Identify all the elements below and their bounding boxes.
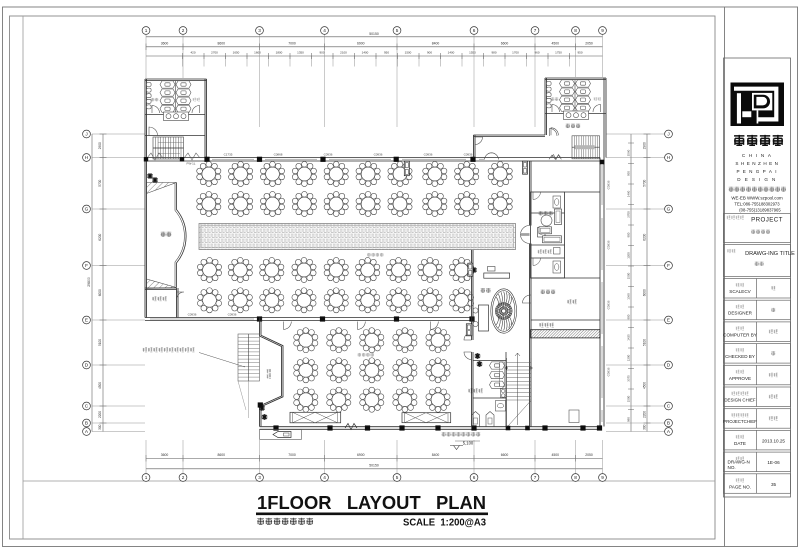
svg-text:2100: 2100 [340, 51, 347, 55]
svg-text:C0936: C0936 [228, 313, 237, 317]
svg-text:C0936: C0936 [324, 153, 333, 157]
svg-text:TEL:086-755188302973: TEL:086-755188302973 [734, 202, 780, 207]
svg-text:1460: 1460 [627, 190, 631, 197]
svg-text:1500: 1500 [405, 51, 412, 55]
svg-text:2050: 2050 [585, 42, 593, 46]
svg-text:FW-1L: FW-1L [187, 162, 196, 166]
svg-text:SCALE 1:200@A3: SCALE 1:200@A3 [403, 518, 486, 529]
svg-text:3600: 3600 [161, 42, 169, 46]
svg-text:G: G [85, 207, 89, 212]
svg-text:7000: 7000 [288, 42, 296, 46]
svg-text:PAGE NO.: PAGE NO. [729, 484, 751, 489]
svg-text:J: J [85, 132, 87, 137]
svg-text:6600: 6600 [501, 42, 509, 46]
svg-text:E: E [667, 318, 670, 323]
svg-text:6600: 6600 [501, 453, 509, 457]
svg-text:7000: 7000 [288, 453, 296, 457]
svg-text:6900: 6900 [357, 42, 365, 46]
svg-text:8600: 8600 [217, 42, 225, 46]
svg-text:1500: 1500 [627, 395, 631, 402]
svg-text:960: 960 [534, 51, 539, 55]
svg-text:2050: 2050 [585, 453, 593, 457]
svg-text:1650: 1650 [233, 51, 240, 55]
svg-text:5100: 5100 [643, 339, 647, 346]
svg-text:5700: 5700 [98, 179, 102, 186]
svg-text:2700: 2700 [627, 211, 631, 218]
svg-text:6200: 6200 [643, 233, 647, 240]
svg-text:2200: 2200 [98, 411, 102, 418]
svg-text:980: 980 [627, 417, 631, 422]
svg-text:6000: 6000 [643, 289, 647, 296]
svg-text:300: 300 [643, 424, 647, 430]
svg-text:C0936: C0936 [607, 300, 611, 309]
svg-text:6900: 6900 [357, 453, 365, 457]
svg-text:1200: 1200 [627, 252, 631, 259]
svg-text:7: 7 [534, 475, 537, 480]
svg-text:4500: 4500 [551, 453, 559, 457]
svg-text:1600: 1600 [254, 51, 261, 55]
svg-text:4: 4 [323, 475, 326, 480]
svg-text:G: G [667, 207, 671, 212]
svg-text:C0936: C0936 [188, 313, 197, 317]
svg-text:1200: 1200 [627, 354, 631, 361]
svg-text:1E-06: 1E-06 [767, 460, 780, 465]
svg-text:B: B [85, 421, 88, 426]
svg-text:4500: 4500 [551, 42, 559, 46]
svg-text:7: 7 [534, 28, 537, 33]
svg-text:2013.10.25: 2013.10.25 [762, 438, 785, 443]
svg-text:8: 8 [574, 475, 577, 480]
svg-text:H: H [85, 155, 88, 160]
svg-text:PROJECTCHIEF: PROJECTCHIEF [723, 419, 757, 424]
svg-text:6: 6 [473, 475, 476, 480]
svg-text:B: B [667, 421, 670, 426]
svg-text:950: 950 [577, 51, 582, 55]
svg-text:8600: 8600 [217, 453, 225, 457]
svg-text:1400: 1400 [448, 51, 455, 55]
svg-text:DESIGNER: DESIGNER [728, 311, 753, 316]
svg-text:2900: 2900 [98, 142, 102, 149]
svg-text:4: 4 [323, 28, 326, 33]
svg-text:900: 900 [627, 314, 631, 319]
svg-text:5: 5 [396, 28, 399, 33]
svg-text:C0868: C0868 [274, 153, 283, 157]
svg-text:2: 2 [182, 475, 185, 480]
svg-text:(08-755)13189837965: (08-755)13189837965 [739, 208, 781, 213]
svg-text:1: 1 [145, 28, 148, 33]
svg-text:5: 5 [396, 475, 399, 480]
svg-text:DATE: DATE [734, 441, 746, 446]
svg-text:50150: 50150 [369, 32, 379, 36]
svg-text:1FLOOR LAYOUT PLAN: 1FLOOR LAYOUT PLAN [257, 492, 486, 513]
svg-text:4500: 4500 [98, 382, 102, 389]
svg-text:H: H [667, 155, 670, 160]
svg-text:1550: 1550 [469, 51, 476, 55]
svg-text:S H E N Z H E N: S H E N Z H E N [735, 161, 778, 166]
svg-text:F: F [85, 263, 88, 268]
svg-text:CHECKED BY: CHECKED BY [725, 354, 755, 359]
svg-text:APPROVE: APPROVE [729, 376, 751, 381]
svg-text:50150: 50150 [369, 464, 379, 468]
svg-text:1800: 1800 [276, 51, 283, 55]
svg-text:5100: 5100 [98, 339, 102, 346]
svg-text:PROJECT: PROJECT [751, 217, 783, 224]
svg-text:900: 900 [627, 232, 631, 237]
svg-text:1360: 1360 [627, 293, 631, 300]
svg-text:900: 900 [319, 51, 324, 55]
svg-text:8: 8 [574, 28, 577, 33]
svg-text:3375: 3375 [627, 375, 631, 382]
svg-text:C0936: C0936 [424, 153, 433, 157]
svg-text:SCALECV: SCALECV [729, 289, 751, 294]
svg-text:J: J [667, 132, 669, 137]
svg-text:C0936: C0936 [607, 240, 611, 249]
svg-text:1425: 1425 [627, 334, 631, 341]
svg-text:950: 950 [384, 51, 389, 55]
svg-text:1500: 1500 [627, 272, 631, 279]
svg-text:980: 980 [491, 51, 496, 55]
svg-text:C0936: C0936 [607, 180, 611, 189]
svg-text:DRAWG-ING TITLE: DRAWG-ING TITLE [745, 251, 795, 257]
svg-text:F: F [667, 263, 670, 268]
svg-text:6000: 6000 [98, 289, 102, 296]
svg-text:P E N G P A I: P E N G P A I [736, 169, 777, 174]
svg-text:5700: 5700 [643, 179, 647, 186]
svg-text:4500: 4500 [643, 382, 647, 389]
svg-text:1750: 1750 [555, 51, 562, 55]
svg-text:3600: 3600 [161, 453, 169, 457]
svg-text:1700: 1700 [512, 51, 519, 55]
svg-text:6: 6 [473, 28, 476, 33]
svg-text:3: 3 [258, 28, 261, 33]
svg-text:C0936: C0936 [374, 153, 383, 157]
svg-text:950: 950 [627, 171, 631, 176]
svg-text:8400: 8400 [432, 453, 440, 457]
svg-text:C H I N A: C H I N A [742, 153, 772, 158]
svg-text:2560: 2560 [627, 149, 631, 156]
svg-text:2900: 2900 [643, 142, 647, 149]
svg-text:35: 35 [771, 482, 777, 487]
svg-text:COMPUTER BY: COMPUTER BY [723, 332, 757, 337]
svg-text:E: E [85, 318, 88, 323]
svg-text:9: 9 [601, 28, 604, 33]
svg-text:C0936: C0936 [464, 153, 473, 157]
svg-text:29800: 29800 [87, 277, 91, 287]
svg-text:1: 1 [145, 475, 148, 480]
svg-text:C1735: C1735 [224, 153, 233, 157]
svg-text:2200: 2200 [643, 411, 647, 418]
svg-text:6200: 6200 [98, 233, 102, 240]
svg-text:420: 420 [190, 51, 195, 55]
svg-text:D E S I G N: D E S I G N [737, 177, 776, 182]
svg-text:9: 9 [601, 475, 604, 480]
svg-text:8400: 8400 [432, 42, 440, 46]
svg-text:3: 3 [258, 475, 261, 480]
svg-text:1400: 1400 [362, 51, 369, 55]
svg-text:1350: 1350 [297, 51, 304, 55]
svg-text:DESIGN CHIEF: DESIGN CHIEF [724, 398, 756, 403]
svg-text:2700: 2700 [211, 51, 218, 55]
svg-text:2: 2 [182, 28, 185, 33]
svg-text:300: 300 [98, 424, 102, 430]
svg-text:C0936: C0936 [607, 367, 611, 376]
svg-text:900: 900 [427, 51, 432, 55]
svg-text:WE-EB WWW.szpool.com: WE-EB WWW.szpool.com [731, 196, 783, 201]
